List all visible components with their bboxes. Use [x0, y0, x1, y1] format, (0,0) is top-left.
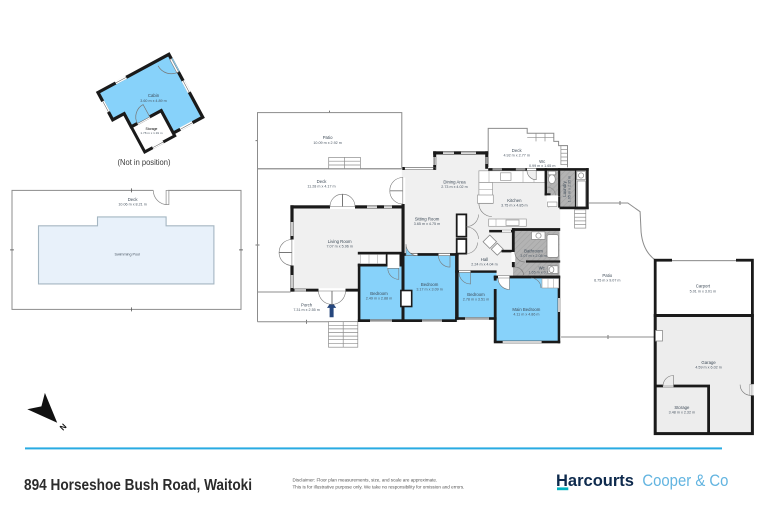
svg-text:Disclaimer: Floor plan measure: Disclaimer: Floor plan measurements, siz… [293, 478, 438, 483]
svg-text:Bedroom: Bedroom [370, 291, 388, 296]
svg-text:4.92 m x 2.77 m: 4.92 m x 2.77 m [503, 154, 529, 158]
svg-text:4.59 m x 6.02 m: 4.59 m x 6.02 m [695, 366, 721, 370]
svg-text:Living Room: Living Room [328, 239, 352, 244]
svg-text:7.31 m x 2.55 m: 7.31 m x 2.55 m [293, 308, 319, 312]
svg-text:Patio: Patio [323, 135, 333, 140]
svg-text:Bedroom: Bedroom [467, 292, 485, 297]
svg-text:3.17 m x 3.09 m: 3.17 m x 3.09 m [416, 287, 442, 291]
svg-text:2.73 m x 4.02 m: 2.73 m x 4.02 m [441, 185, 467, 189]
svg-text:Kitchen: Kitchen [507, 198, 522, 203]
svg-text:0.99 m x 1.65 m: 0.99 m x 1.65 m [529, 164, 555, 168]
svg-text:This is for illustrative purpo: This is for illustrative purpose only. W… [293, 484, 465, 489]
svg-text:Main Bedroom: Main Bedroom [512, 307, 540, 312]
svg-text:894 Horseshoe Bush Road, Waito: 894 Horseshoe Bush Road, Waitoki [24, 477, 252, 494]
svg-text:Garage: Garage [701, 360, 716, 365]
svg-text:Hall: Hall [481, 257, 488, 262]
svg-text:3.65 m x 4.75 m: 3.65 m x 4.75 m [414, 222, 440, 226]
svg-text:3.48 m x 2.32 m: 3.48 m x 2.32 m [669, 410, 695, 414]
svg-text:1.65 m x 2.35 m: 1.65 m x 2.35 m [567, 176, 571, 202]
svg-text:3.75 m x 4.85 m: 3.75 m x 4.85 m [501, 204, 527, 208]
svg-text:3.60 m x 4.89 m: 3.60 m x 4.89 m [140, 99, 166, 103]
svg-text:11.28 m x 4.17 m: 11.28 m x 4.17 m [307, 185, 335, 189]
svg-text:5.01 m x 3.01 m: 5.01 m x 3.01 m [690, 289, 716, 293]
svg-text:Bathroom: Bathroom [524, 249, 543, 254]
svg-text:10.06 m x 8.21 m: 10.06 m x 8.21 m [118, 203, 147, 207]
svg-text:Dining Area: Dining Area [443, 179, 466, 184]
svg-text:3.07 m x 2.08 m: 3.07 m x 2.08 m [520, 254, 546, 258]
svg-text:Storage: Storage [674, 405, 690, 410]
svg-text:Sitting Room: Sitting Room [415, 216, 440, 221]
svg-text:2.24 m x 4.04 m: 2.24 m x 4.04 m [471, 262, 497, 266]
svg-text:7.07 m x 5.96 m: 7.07 m x 5.96 m [326, 245, 352, 249]
svg-text:Deck: Deck [512, 148, 523, 153]
svg-text:Porch: Porch [301, 302, 313, 307]
svg-text:4.11 m x 4.86 m: 4.11 m x 4.86 m [513, 313, 539, 317]
svg-text:1.78 m x 1.91 m: 1.78 m x 1.91 m [140, 131, 163, 135]
svg-text:Patio: Patio [602, 273, 612, 278]
svg-text:Cabin: Cabin [148, 93, 160, 98]
svg-text:Swimming Pool: Swimming Pool [114, 253, 140, 257]
svg-text:Bedroom: Bedroom [421, 282, 439, 287]
svg-text:Cooper & Co: Cooper & Co [642, 472, 728, 490]
svg-text:Harcourts: Harcourts [556, 472, 634, 490]
svg-text:Laundry: Laundry [562, 180, 567, 196]
svg-text:6.75 m x 9.07 m: 6.75 m x 9.07 m [594, 279, 620, 283]
svg-text:Carport: Carport [696, 284, 711, 289]
svg-text:2.49 m x 2.88 m: 2.49 m x 2.88 m [366, 296, 392, 300]
svg-text:10.09 m x 2.92 m: 10.09 m x 2.92 m [313, 141, 342, 145]
svg-text:Deck: Deck [317, 179, 328, 184]
svg-text:Deck: Deck [128, 197, 139, 202]
svg-text:2.78 m x 3.51 m: 2.78 m x 3.51 m [463, 297, 489, 301]
svg-text:(Not in position): (Not in position) [118, 158, 171, 167]
